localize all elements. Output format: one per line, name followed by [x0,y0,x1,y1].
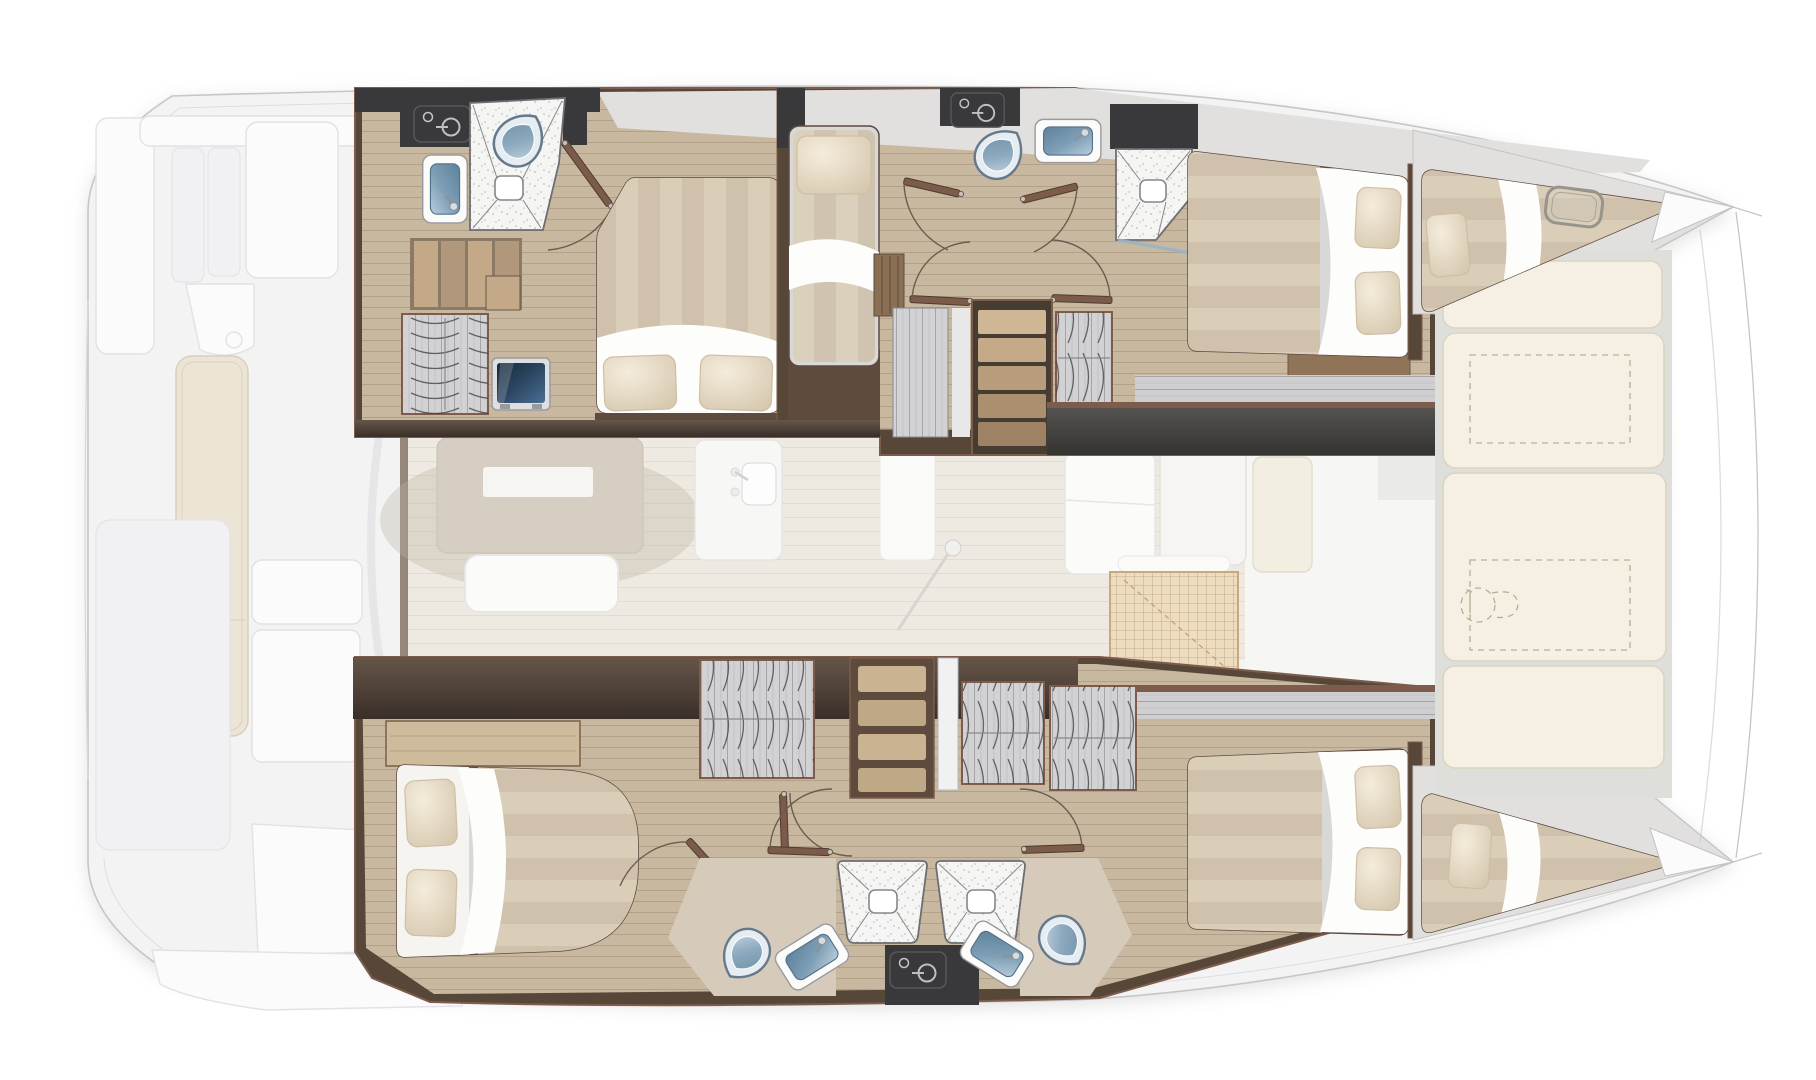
stairs [972,300,1052,455]
shower-tray [967,890,995,913]
sunpad-cushion [1443,333,1664,468]
deck-hatch [1544,186,1604,229]
pillow [699,355,773,411]
deck-panel [252,824,362,956]
bedside-cabinet [874,254,904,316]
shower-tray [869,890,897,913]
power-panel-icon [414,106,470,142]
catamaran-floor-plan [0,0,1816,1080]
forward-cabin [1188,748,1408,938]
hanging-locker [700,660,814,778]
berth-shelf [386,721,580,766]
door-leaf [768,847,830,856]
pillow [1448,823,1492,890]
sofa [465,555,618,612]
hanging-locker [962,682,1044,784]
hull-side-band [1135,375,1438,406]
foredeck [1413,130,1762,940]
port-bow-tip [1652,192,1733,242]
bow-bridle-line [1700,230,1721,842]
hull-side-band [1135,692,1438,719]
hull-side-band [355,420,880,437]
double-berth [595,178,781,425]
pillow [404,779,457,848]
saloon [380,437,1312,676]
shelf-unit [850,658,934,798]
deck-locker [252,560,362,624]
hanging-locker [402,314,488,414]
deck-panel [246,122,338,278]
tall-cabinet [938,658,958,790]
door-leaf [1052,295,1112,304]
galley-step [1118,556,1230,572]
deck-panel [96,520,230,850]
hanging-locker [1050,686,1136,790]
bow-bridle-line [1736,212,1758,858]
pillow [1354,765,1401,829]
pillow [1354,187,1401,249]
sunpads [1443,261,1666,768]
pillow [1355,271,1401,334]
shower-tray [495,176,523,200]
saloon-table-leaf [483,467,593,497]
nightstand [486,276,520,310]
shower-wall [1110,104,1198,149]
band-trim [1047,402,1438,408]
deck-fitting [226,332,242,348]
bathroom-wall [563,95,587,145]
hanging-locker [1056,312,1112,404]
hull-side-band [1047,408,1438,455]
pillow [1355,847,1401,910]
door-leaf [1022,844,1084,853]
stair-panel [893,308,948,437]
sunpad-cushion [1443,473,1666,661]
cockpit-pillar [172,148,204,282]
washbasin [423,155,468,223]
deck-panel [96,118,154,354]
bathrooms [668,858,1132,1005]
pillow [797,136,871,194]
cockpit-pillar [208,148,240,276]
power-panel-icon [890,952,946,988]
washbasin [1035,119,1101,162]
galley-cabinet [1160,440,1312,572]
compass-ball [945,540,961,556]
power-panel-icon [951,93,1004,127]
pillow [603,355,677,411]
tv-screen [492,358,550,410]
floor-plan-canvas [0,0,1816,1080]
pillow [405,869,457,937]
sunpad-cushion [1443,666,1664,768]
forward-cabin [1188,150,1408,360]
stair-panel [952,308,970,437]
deck-locker [252,630,360,762]
pillow [1425,212,1470,277]
door-leaf [780,794,789,852]
galley-unit [695,440,782,560]
shower-tray [1140,180,1166,202]
band-trim [1135,685,1438,692]
